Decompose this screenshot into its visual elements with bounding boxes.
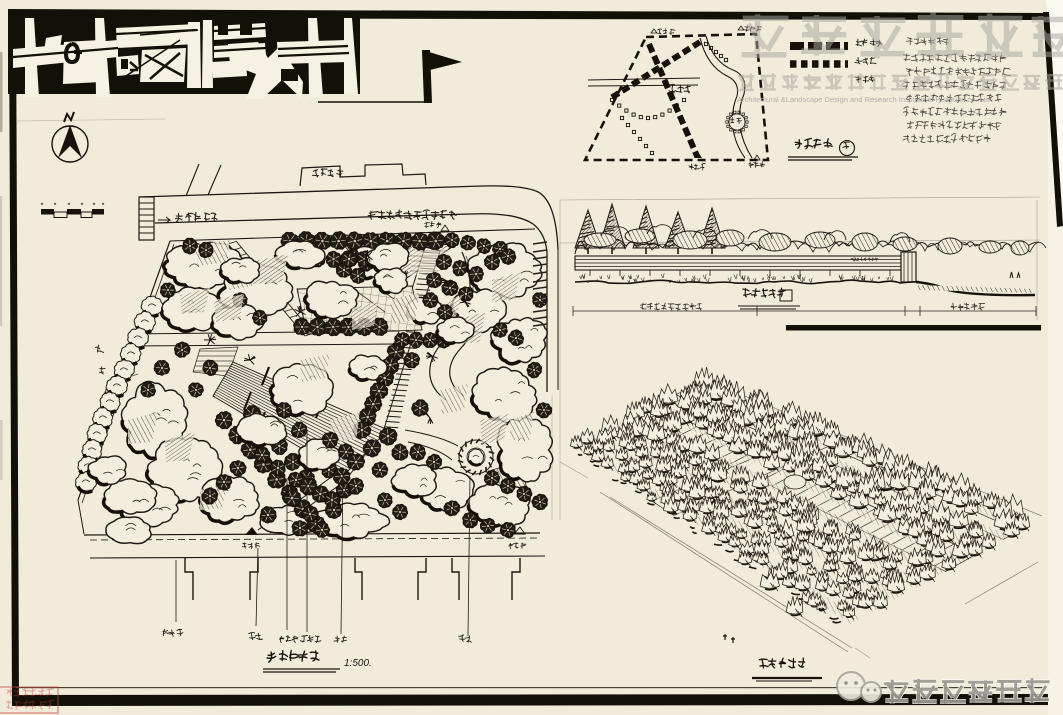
svg-text:1:500.: 1:500. [344,658,372,669]
svg-text:Architectural &Landscape Desig: Architectural &Landscape Design and Rese… [737,95,990,104]
